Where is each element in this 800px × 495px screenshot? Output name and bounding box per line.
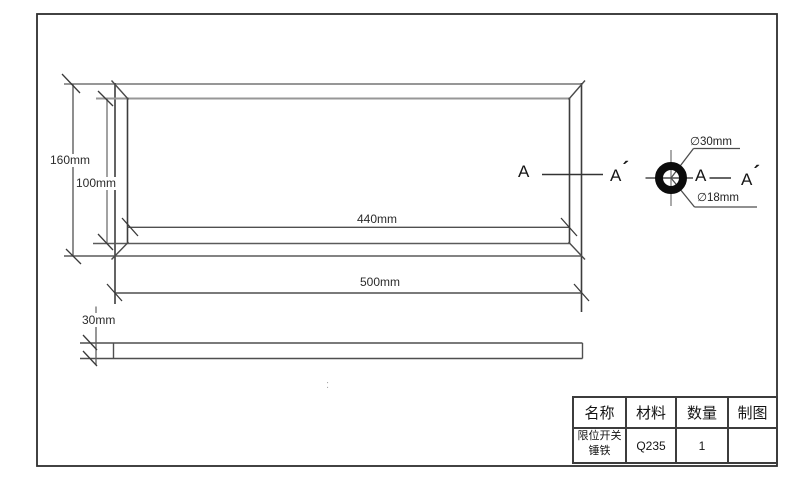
title-block-quantity-cell: 1 bbox=[676, 428, 728, 463]
dim-440-label: 440mm bbox=[356, 213, 398, 226]
title-block-header-drafting: 制图 bbox=[728, 397, 777, 428]
prime-mark-2: ´ bbox=[753, 163, 760, 185]
drawing-canvas: 160mm 100mm 440mm 500mm 30mm ∅30mm ∅18mm… bbox=[0, 0, 800, 495]
dim-500-label: 500mm bbox=[359, 276, 401, 289]
ring-label-a-prime-text: A bbox=[741, 170, 752, 189]
ring-label-a-text: A bbox=[695, 166, 706, 185]
dim-160-label: 160mm bbox=[49, 154, 91, 167]
miter-bottom-left bbox=[112, 242, 129, 260]
title-block-data-row: 限位开关 锤铁 Q235 1 bbox=[573, 428, 777, 463]
ring-label-a-prime: A´ bbox=[741, 165, 760, 189]
title-block-material-cell: Q235 bbox=[626, 428, 676, 463]
prime-mark: ´ bbox=[622, 159, 629, 181]
part-name-line1: 限位开关 bbox=[574, 429, 625, 444]
title-block-drafting-cell bbox=[728, 428, 777, 463]
dia-30-label: ∅30mm bbox=[690, 136, 732, 149]
title-block-header-name: 名称 bbox=[573, 397, 626, 428]
title-block-header-material: 材料 bbox=[626, 397, 676, 428]
dim-100-label: 100mm bbox=[75, 177, 117, 190]
miter-bottom-right bbox=[569, 242, 586, 260]
dim-30-label: 30mm bbox=[81, 314, 116, 327]
section-label-a-prime-text: A bbox=[610, 166, 621, 185]
ring-label-a: A bbox=[695, 167, 706, 185]
stray-mark: : bbox=[326, 379, 329, 392]
title-block-part-name-cell: 限位开关 锤铁 bbox=[573, 428, 626, 463]
part-name-line2: 锤铁 bbox=[574, 444, 625, 459]
dia-18-label: ∅18mm bbox=[697, 192, 739, 205]
title-block-header-row: 名称 材料 数量 制图 bbox=[573, 397, 777, 428]
section-label-a: A bbox=[518, 163, 529, 181]
section-label-a-prime: A´ bbox=[610, 161, 629, 185]
section-label-a-text: A bbox=[518, 162, 529, 181]
title-block-table: 名称 材料 数量 制图 限位开关 锤铁 Q235 1 bbox=[572, 396, 778, 464]
tick-100-bottom bbox=[98, 234, 113, 250]
title-block-header-quantity: 数量 bbox=[676, 397, 728, 428]
